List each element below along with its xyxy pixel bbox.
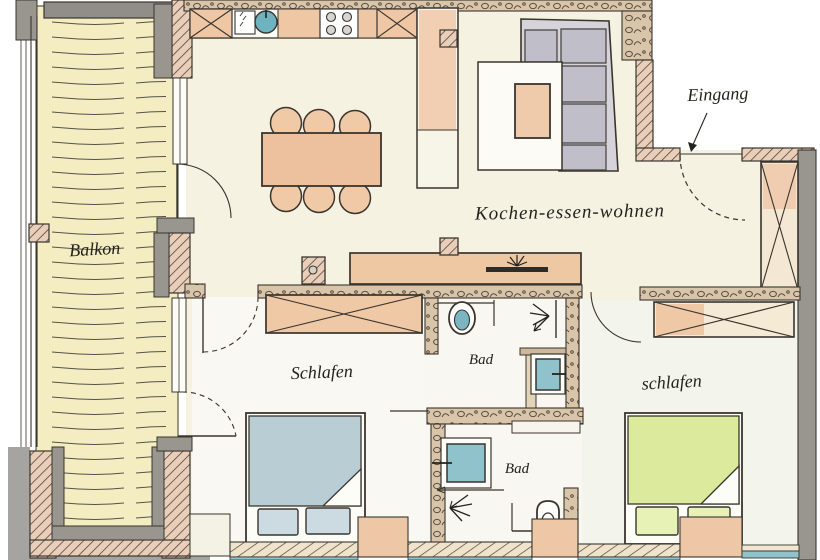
bed-double-left [246,413,365,543]
counter-segment [278,9,320,38]
chair-icon [340,183,371,214]
bath-bottom-label: Bad [505,461,530,477]
cabinet-x-right [377,9,417,38]
wall-stone [640,287,800,300]
cabinet-x-left [190,9,232,38]
tv-icon [486,267,548,272]
wall-segment [358,517,408,557]
column-post [440,238,458,255]
wall-segment [532,519,578,557]
sofa-cushion [561,145,606,170]
tall-cabinet [417,8,458,188]
wardrobe-left [266,295,422,333]
counter-segment [358,9,377,38]
column-post-core [309,266,317,274]
column-post [440,30,457,47]
pillow-icon [306,508,350,534]
stove-icon [320,9,358,38]
sideboard [350,253,581,284]
sofa-cushion [561,29,606,63]
wall-hatched [636,148,680,161]
balcony-label: Balkon [69,238,121,261]
window-sill [230,542,358,557]
coffee-table [515,84,550,138]
wall-stone [622,11,652,60]
wall-gray [157,437,192,451]
bath-top-label: Bad [469,352,494,368]
balcony-decking-icon [52,16,166,528]
pillow-icon [258,509,298,535]
wall-stone [566,298,579,408]
wall-hatched [636,60,653,150]
exterior-wall [8,447,30,560]
pillow-icon [636,507,678,535]
wall-segment [680,517,742,557]
floorplan: Balkon [0,0,820,560]
bedroom-left-label: Schlafen [290,361,353,383]
dining-set [262,108,381,214]
sofa-cushion [525,30,557,62]
entrance-label: Eingang [686,83,749,105]
wall-stone [425,298,438,354]
sofa-cushion [561,66,606,102]
window-sill [578,544,680,557]
wall-gray [152,447,164,526]
wall-stone [185,284,205,298]
window-glass [742,551,799,558]
washbasin-icon [447,444,485,482]
wall-segment [190,514,230,556]
window-sill [408,542,532,557]
living-label: Kochen-essen-wohnen [474,200,665,224]
wall-gray [798,150,816,560]
wall-gray [157,218,194,233]
window-sill [742,545,799,551]
wall-gray [52,447,64,526]
entrance-arrow-icon [692,113,707,147]
wall-gray [154,233,169,297]
balcony-corner-wall [16,0,37,40]
toilet-bowl-icon [455,310,470,330]
sofa-cushion [561,104,606,143]
railing-post [29,224,49,242]
wall-niche [512,421,580,433]
dining-table [262,133,381,186]
wall-hatched [30,540,192,556]
bedroom-right-label: schlafen [641,370,702,393]
wall-hatched [172,0,192,78]
entry-wardrobe [761,162,798,290]
floorplan-drawing: Balkon [0,0,820,560]
wall-gray [52,526,164,540]
wall-gray [154,4,172,78]
wardrobe-right [654,302,794,337]
